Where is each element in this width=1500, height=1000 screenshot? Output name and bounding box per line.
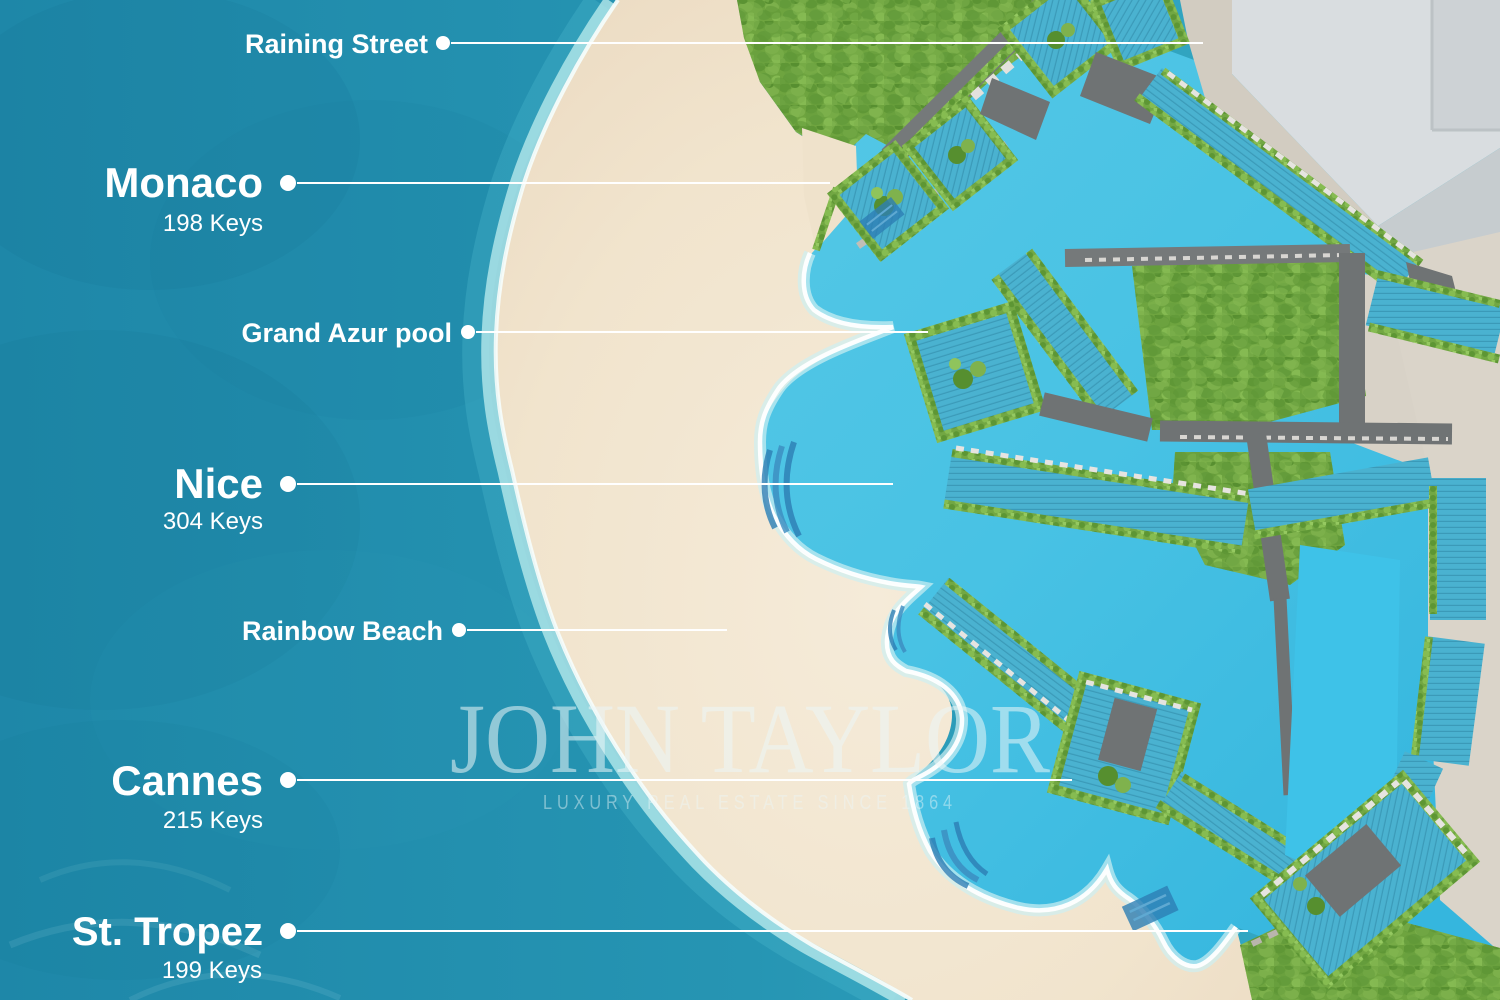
svg-text:Nice: Nice bbox=[174, 460, 263, 507]
svg-text:St. Tropez: St. Tropez bbox=[72, 910, 263, 954]
svg-text:Raining Street: Raining Street bbox=[245, 29, 428, 59]
svg-text:Rainbow Beach: Rainbow Beach bbox=[242, 616, 443, 646]
svg-text:198 Keys: 198 Keys bbox=[163, 210, 263, 237]
svg-text:215 Keys: 215 Keys bbox=[163, 807, 263, 834]
svg-text:Grand Azur pool: Grand Azur pool bbox=[242, 318, 453, 348]
svg-text:199 Keys: 199 Keys bbox=[162, 957, 262, 984]
svg-text:304 Keys: 304 Keys bbox=[163, 508, 263, 535]
svg-text:LUXURY REAL ESTATE SINCE 1864: LUXURY REAL ESTATE SINCE 1864 bbox=[543, 792, 957, 814]
svg-text:Monaco: Monaco bbox=[104, 159, 263, 206]
svg-text:JOHN TAYLOR: JOHN TAYLOR bbox=[450, 683, 1050, 794]
svg-text:Cannes: Cannes bbox=[111, 757, 263, 804]
